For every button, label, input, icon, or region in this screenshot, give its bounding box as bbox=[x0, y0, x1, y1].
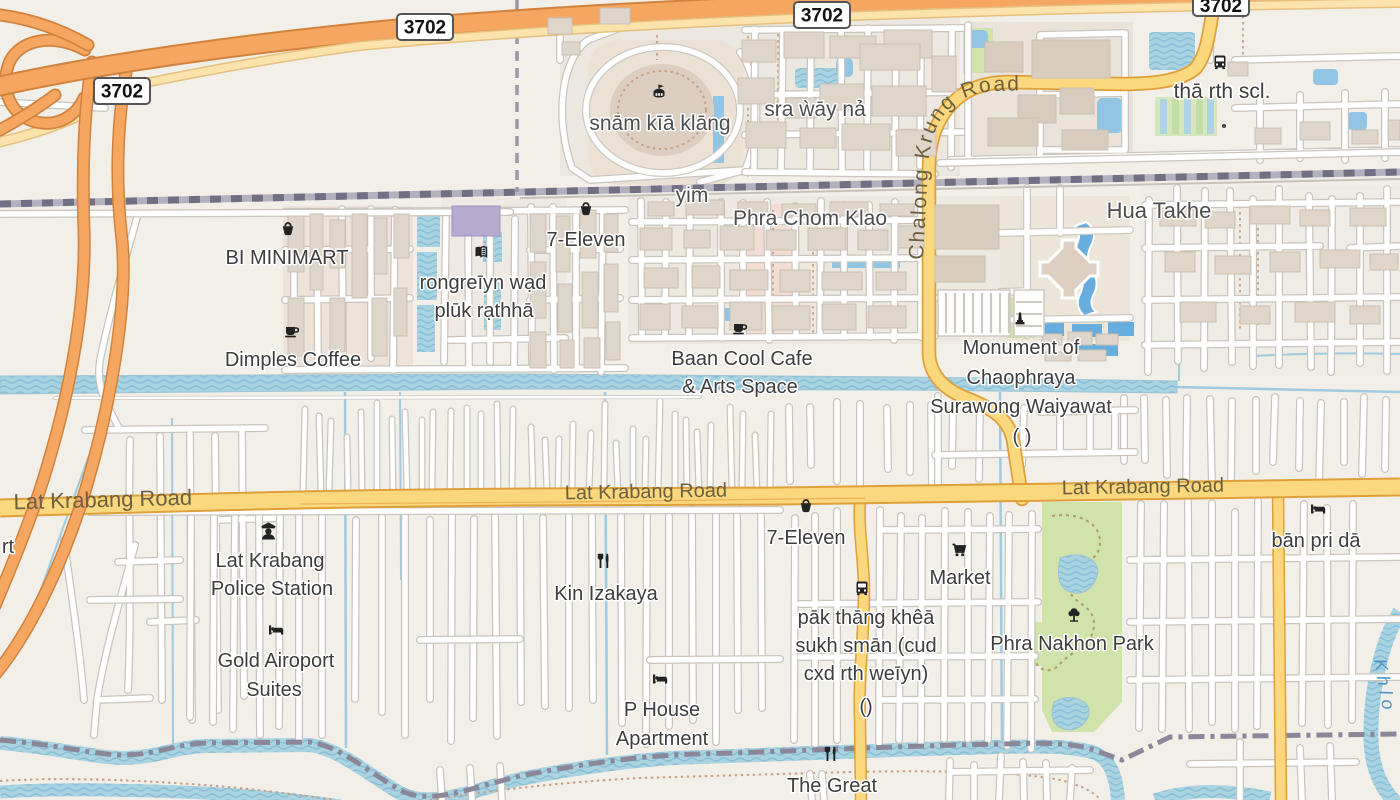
svg-text:Dimples Coffee: Dimples Coffee bbox=[225, 349, 361, 371]
svg-text:7-Eleven: 7-Eleven bbox=[767, 527, 846, 549]
svg-text:BI MINIMART: BI MINIMART bbox=[226, 247, 349, 269]
svg-text:Phra Nakhon Park: Phra Nakhon Park bbox=[990, 633, 1154, 655]
svg-text:7-Eleven: 7-Eleven bbox=[547, 229, 626, 251]
svg-text:bān pri dā: bān pri dā bbox=[1272, 530, 1362, 552]
svg-text:Monument of: Monument of bbox=[963, 337, 1080, 359]
svg-text:Chaophraya: Chaophraya bbox=[967, 367, 1077, 389]
svg-text:The Great: The Great bbox=[787, 775, 877, 797]
svg-text:3702: 3702 bbox=[404, 18, 446, 39]
svg-text:rongreīyn wạd: rongreīyn wạd bbox=[420, 272, 547, 294]
svg-text:yim: yim bbox=[676, 184, 709, 207]
svg-text:Hua Takhe: Hua Takhe bbox=[1107, 198, 1212, 223]
svg-text:pāk thāng khêā: pāk thāng khêā bbox=[798, 607, 936, 629]
svg-text:snām kīā klāng: snām kīā klāng bbox=[589, 112, 730, 135]
svg-text:rt: rt bbox=[2, 536, 15, 558]
svg-text:( ): ( ) bbox=[1013, 426, 1032, 448]
svg-text:Surawong Waiyawat: Surawong Waiyawat bbox=[930, 396, 1112, 418]
svg-text:P House: P House bbox=[624, 699, 700, 721]
svg-text:Phra Chom Klao: Phra Chom Klao bbox=[733, 207, 887, 230]
svg-text:sra ẁāy nả: sra ẁāy nả bbox=[764, 98, 866, 121]
svg-text:Baan Cool Cafe: Baan Cool Cafe bbox=[671, 348, 812, 370]
svg-text:3702: 3702 bbox=[801, 6, 843, 27]
svg-text:3702: 3702 bbox=[1200, 0, 1242, 17]
svg-text:3702: 3702 bbox=[101, 82, 143, 103]
svg-text:Lat Krabang Road: Lat Krabang Road bbox=[565, 480, 728, 505]
svg-text:Market: Market bbox=[929, 567, 991, 589]
svg-text:plūk rạthhā: plūk rạthhā bbox=[435, 300, 535, 322]
svg-text:Apartment: Apartment bbox=[616, 728, 709, 750]
svg-text:Kin Izakaya: Kin Izakaya bbox=[554, 583, 658, 605]
svg-text:thā rth scl.: thā rth scl. bbox=[1174, 80, 1271, 103]
svg-text:Suites: Suites bbox=[246, 679, 302, 701]
svg-text:cxd rth weīyn): cxd rth weīyn) bbox=[804, 663, 928, 685]
svg-text:Lat Krabang Road: Lat Krabang Road bbox=[1062, 475, 1225, 500]
svg-text:sukh smān (cud: sukh smān (cud bbox=[795, 635, 936, 657]
svg-text:Lat Krabang Road: Lat Krabang Road bbox=[13, 485, 192, 515]
svg-text:Police Station: Police Station bbox=[211, 578, 333, 600]
svg-text:Lat Krabang: Lat Krabang bbox=[216, 550, 325, 572]
svg-text:& Arts Space: & Arts Space bbox=[682, 376, 798, 398]
svg-text:(): () bbox=[859, 696, 872, 718]
svg-text:Gold Airoport: Gold Airoport bbox=[218, 650, 335, 672]
